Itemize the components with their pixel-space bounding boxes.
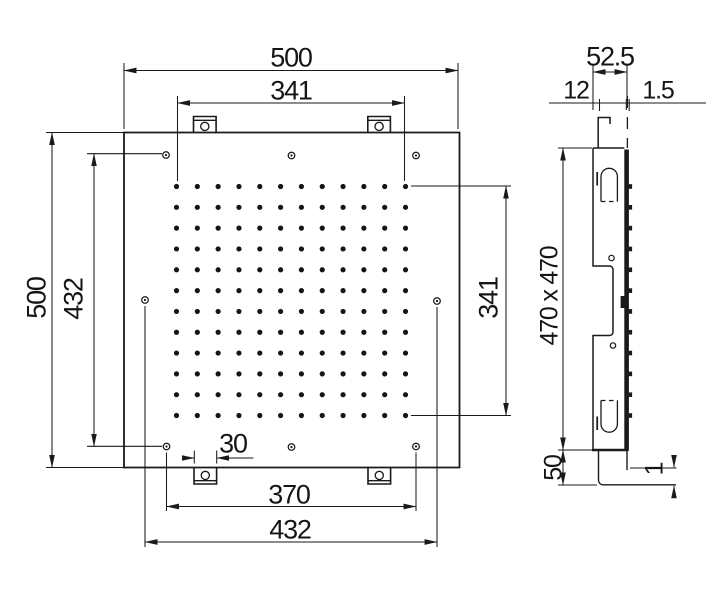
nozzle-dot [174,246,179,251]
nozzle-dot [299,184,304,189]
nozzle-dot [361,413,366,418]
nozzle-dot [257,184,262,189]
nozzle-dot [278,371,283,376]
nozzle-dot [361,309,366,314]
side-nozzle-bump [629,226,632,231]
nozzle-dot [320,288,325,293]
dim-label-hole-span-horizontal: 370 [268,482,309,509]
nozzle-dot [195,413,200,418]
nozzle-dot [320,371,325,376]
nozzle-dot [340,371,345,376]
screw-hole-center [436,300,438,302]
screw-hole-center [165,154,167,156]
nozzle-dot [195,226,200,231]
shower-head-technical-drawing [0,0,716,606]
nozzle-dot [340,267,345,272]
nozzle-dot [257,309,262,314]
side-nozzle-bump [629,372,632,377]
nozzle-dot [403,205,408,210]
nozzle-dot [299,413,304,418]
nozzle-dot [174,309,179,314]
nozzle-dot [195,350,200,355]
nozzle-dot [278,184,283,189]
nozzle-dot [361,392,366,397]
screw-hole-center [415,445,417,447]
nozzle-dot [403,392,408,397]
nozzle-dot [340,205,345,210]
side-nozzle-bump [629,351,632,356]
nozzle-dot [216,246,221,251]
nozzle-dot [236,246,241,251]
nozzle-dot [174,371,179,376]
nozzle-dot [299,309,304,314]
nozzle-dot [278,205,283,210]
nozzle-dot [340,309,345,314]
nozzle-dot [216,330,221,335]
nozzle-dot [216,350,221,355]
nozzle-dot [236,392,241,397]
face-plate-section [621,296,628,308]
nozzle-dot [257,205,262,210]
nozzle-dot [216,226,221,231]
nozzle-dot [174,267,179,272]
nozzle-dot [195,371,200,376]
screw-hole-center [165,445,167,447]
nozzle-dot [382,413,387,418]
nozzle-dot [320,350,325,355]
nozzle-dot [257,267,262,272]
nozzle-dot [195,309,200,314]
side-nozzle-bump [629,413,632,418]
nozzle-dot [403,184,408,189]
nozzle-dot [278,267,283,272]
nozzle-dot [174,392,179,397]
nozzle-dot [299,205,304,210]
nozzle-dot [236,371,241,376]
nozzle-dot [382,288,387,293]
nozzle-dot [382,267,387,272]
screw-holes [142,152,441,451]
nozzle-dot [340,246,345,251]
nozzle-dot [361,184,366,189]
nozzle-dot [361,205,366,210]
dim-label-panel-gap-bottom: 1 [643,463,668,476]
nozzle-dot [278,392,283,397]
nozzle-dot [216,288,221,293]
nozzle-dot [403,309,408,314]
nozzle-dot [278,309,283,314]
nozzle-dot [403,330,408,335]
nozzle-dot [299,267,304,272]
side-view-outline [592,118,676,485]
nozzle-dot [340,226,345,231]
tab-hole [201,471,209,479]
screw-hole-center [290,154,292,156]
screw-hole-center [144,299,146,301]
dim-label-nozzle-field-width: 341 [270,78,311,105]
nozzle-dot [403,267,408,272]
nozzle-dot [403,413,408,418]
side-nozzle-bump [629,392,632,397]
dim-label-nozzle-field-height: 341 [476,277,503,318]
nozzle-dot [403,246,408,251]
side-profile-edge [598,118,610,149]
nozzle-dot [257,246,262,251]
nozzle-dot [403,350,408,355]
nozzle-dot [320,184,325,189]
side-profile-edge [601,168,617,201]
nozzle-dot [403,371,408,376]
nozzle-dot [195,288,200,293]
side-nozzle-bump [629,184,632,189]
side-profile-edge [593,148,613,450]
nozzle-dot [361,350,366,355]
nozzle-dot [299,330,304,335]
nozzle-dot [403,226,408,231]
nozzle-dot [257,413,262,418]
nozzle-dot [320,205,325,210]
side-screw-hole [609,255,614,260]
dim-label-hook-inset: 12 [563,79,588,104]
side-nozzle-bump [629,309,632,314]
nozzle-dot [174,184,179,189]
nozzle-dot [299,246,304,251]
nozzle-grid [174,184,408,418]
dim-label-overall-width: 500 [270,45,311,72]
side-profile-edge [601,401,617,433]
nozzle-dot [320,309,325,314]
nozzle-dot [195,392,200,397]
nozzle-dot [340,288,345,293]
nozzle-dot [216,309,221,314]
technical-drawing-canvas: 500 341 500 432 341 30 370 432 52.5 12 1… [0,0,716,606]
nozzle-dot [340,184,345,189]
nozzle-dot [195,184,200,189]
nozzle-dot [236,205,241,210]
side-nozzle-bump [629,247,632,252]
nozzle-dot [216,205,221,210]
nozzle-dot [382,392,387,397]
nozzle-dot [216,184,221,189]
nozzle-dot [278,246,283,251]
nozzle-dot [340,392,345,397]
side-nozzle-bump [629,267,632,272]
side-nozzle-bump [629,205,632,210]
nozzle-dot [278,226,283,231]
nozzle-dot [236,267,241,272]
nozzle-dot [278,288,283,293]
dim-label-side-hole-span: 432 [269,517,310,544]
dim-label-flange-height: 50 [542,455,567,480]
side-nozzle-bumps [629,184,632,418]
nozzle-dot [195,330,200,335]
nozzle-dot [361,226,366,231]
nozzle-dot [320,246,325,251]
nozzle-dot [236,288,241,293]
nozzle-dot [382,309,387,314]
nozzle-dot [236,350,241,355]
nozzle-dot [236,330,241,335]
nozzle-dot [320,392,325,397]
nozzle-dot [195,205,200,210]
side-nozzle-bump [629,330,632,335]
nozzle-dot [361,246,366,251]
nozzle-dot [382,330,387,335]
nozzle-dot [257,371,262,376]
dim-label-tab-width: 30 [219,431,247,458]
nozzle-dot [320,226,325,231]
dim-label-hole-span-vertical: 432 [61,278,88,319]
nozzle-dot [320,267,325,272]
nozzle-dot [257,288,262,293]
nozzle-dot [382,226,387,231]
face-plate-outline [124,133,460,468]
nozzle-dot [361,330,366,335]
nozzle-dot [403,288,408,293]
nozzle-dot [340,350,345,355]
nozzle-dot [382,371,387,376]
nozzle-dot [195,246,200,251]
nozzle-dot [236,184,241,189]
front-view-outline [124,133,460,468]
tab-hole [375,122,383,130]
nozzle-dot [216,267,221,272]
nozzle-dot [299,288,304,293]
nozzle-dot [257,330,262,335]
nozzle-dot [361,371,366,376]
nozzle-dot [216,413,221,418]
nozzle-dot [382,350,387,355]
hidden-edge-lines [601,96,627,401]
nozzle-dot [278,413,283,418]
nozzle-dot [236,309,241,314]
nozzle-dot [174,288,179,293]
dim-label-overall-height: 500 [24,277,51,318]
nozzle-dot [382,184,387,189]
nozzle-dot [236,413,241,418]
screw-hole-center [415,154,417,156]
nozzle-dot [174,205,179,210]
screw-hole-center [290,446,292,448]
nozzle-dot [340,330,345,335]
nozzle-dot [278,330,283,335]
dim-label-housing-size: 470 x 470 [538,246,563,345]
nozzle-dot [257,226,262,231]
nozzle-dot [236,226,241,231]
nozzle-dot [382,246,387,251]
nozzle-dot [299,392,304,397]
nozzle-dot [174,226,179,231]
side-screw-hole [610,343,615,348]
nozzle-dot [257,350,262,355]
tab-hole [375,471,383,479]
nozzle-dot [216,392,221,397]
nozzle-dot [299,226,304,231]
nozzle-dot [257,392,262,397]
nozzle-dot [382,205,387,210]
nozzle-dot [216,371,221,376]
nozzle-dot [340,413,345,418]
nozzle-dot [278,350,283,355]
nozzle-dot [361,288,366,293]
side-nozzle-bump [629,288,632,293]
nozzle-dot [174,330,179,335]
tab-hole [201,122,209,130]
dim-label-panel-gap-top: 1.5 [642,79,673,104]
nozzle-dot [320,413,325,418]
nozzle-dot [174,413,179,418]
dim-label-overall-depth: 52.5 [586,44,634,71]
nozzle-dot [174,350,179,355]
nozzle-dot [361,267,366,272]
nozzle-dot [299,350,304,355]
nozzle-dot [320,330,325,335]
nozzle-dot [299,371,304,376]
nozzle-dot [195,267,200,272]
